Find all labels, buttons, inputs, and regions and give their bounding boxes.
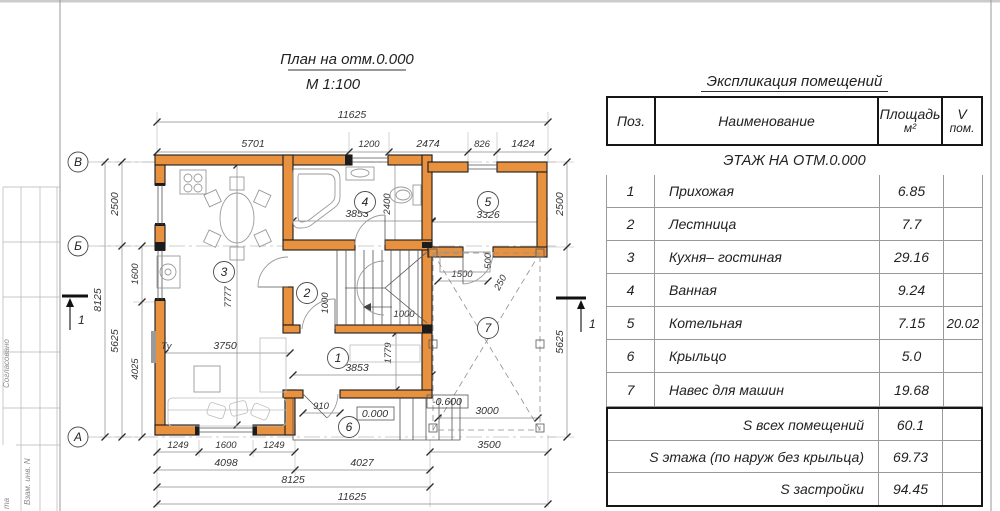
summary-row: S всех помещений 60.1 [608, 409, 981, 441]
dim-1424: 1424 [511, 138, 535, 150]
dim-left-4025: 4025 [130, 358, 141, 380]
row-pos: 5 [607, 307, 655, 339]
row-vol [944, 175, 982, 207]
summary-vol [943, 441, 981, 472]
dim-left-1600: 1600 [130, 263, 141, 285]
dim-b-1249b: 1249 [263, 440, 285, 451]
row-area: 5.0 [880, 340, 944, 372]
room-1: 1 [335, 351, 342, 365]
row-name: Кухня– гостиная [655, 241, 880, 273]
table-row: 7 Навес для машин 19.68 [607, 373, 982, 406]
summary-name: S этажа (по наруж без крыльца) [608, 441, 879, 472]
stamp-agreed-label: Согласовано [2, 339, 11, 388]
washing-machine [157, 256, 180, 288]
row-name: Крыльцо [655, 340, 880, 372]
room-6: 6 [346, 420, 353, 434]
summary-name: S застройки [608, 473, 879, 505]
dim-826: 826 [474, 139, 491, 150]
schedule-header: Поз. Наименование Площадь м² V пом. [606, 96, 983, 146]
row-pos: 4 [607, 274, 655, 306]
plan-scale: М 1:100 [306, 76, 361, 93]
elevation-zero: 0.000 [362, 408, 388, 420]
sofa [168, 398, 286, 426]
section-mark-right: 1 [556, 298, 596, 332]
bathtub [293, 169, 340, 228]
summary-name: S всех помещений [608, 409, 879, 440]
table-row: 4 Ванная 9.24 [607, 274, 982, 307]
dim-5701: 5701 [241, 138, 264, 150]
col-name: Наименование [656, 98, 879, 144]
dim-b-11625: 11625 [338, 491, 367, 503]
row-area: 7.7 [880, 208, 944, 240]
row-area: 6.85 [880, 175, 944, 207]
row-pos: 2 [607, 208, 655, 240]
elevation-marks: 0.000 -0.600 [357, 395, 468, 420]
table-row: 2 Лестница 7.7 [607, 208, 982, 241]
row-name: Прихожая [655, 175, 880, 207]
row-area: 7.15 [880, 307, 944, 339]
summary-area: 94.45 [879, 473, 943, 505]
summary-row: S этажа (по наруж без крыльца) 69.73 [608, 441, 981, 473]
axis-bubbles: В Б А [68, 152, 88, 447]
dim-stair-a: 1000 [320, 292, 331, 314]
stamp-data-label: та [2, 497, 11, 509]
summary-vol [943, 409, 981, 440]
dim-left-5625: 5625 [109, 329, 121, 353]
dim-right-5625: 5625 [554, 330, 566, 354]
dim-right-2500: 2500 [554, 192, 566, 217]
section-number-right: 1 [589, 317, 596, 331]
dim-living-h: 7777 [223, 286, 234, 308]
row-vol [944, 340, 982, 372]
kitchen-door-swing [258, 257, 288, 287]
row-vol [944, 274, 982, 306]
col-area: Площадь м² [879, 98, 943, 144]
dim-bath-h: 2400 [382, 193, 393, 216]
room-4: 4 [362, 195, 369, 209]
schedule-title: Экспликация помещений [606, 73, 983, 90]
row-name: Лестница [655, 208, 880, 240]
dim-left-8125: 8125 [92, 288, 104, 312]
row-vol [944, 208, 982, 240]
row-vol [944, 241, 982, 273]
row-pos: 6 [607, 340, 655, 372]
row-name: Ванная [655, 274, 880, 306]
room-5: 5 [485, 195, 492, 209]
section-mark-left: 1 [62, 296, 88, 330]
schedule-summary: S всех помещений 60.1 S этажа (по наруж … [606, 407, 983, 507]
axis-v-label: В [74, 155, 82, 169]
row-area: 29.16 [880, 241, 944, 273]
room-2: 2 [303, 286, 311, 300]
schedule-rows: 1 Прихожая 6.85 2 Лестница 7.7 3 Кухня– … [606, 175, 983, 407]
dim-b-8125: 8125 [281, 474, 305, 486]
dim-left-2500: 2500 [109, 192, 121, 217]
dim-b-3500: 3500 [477, 439, 501, 451]
dim-2474: 2474 [415, 138, 440, 150]
dim-car-1500: 1500 [451, 269, 473, 280]
dim-b-4098: 4098 [214, 457, 238, 469]
dim-1200: 1200 [358, 139, 380, 150]
schedule-title-text: Экспликация помещений [701, 73, 889, 92]
summary-row: S застройки 94.45 [608, 473, 981, 505]
room-3: 3 [221, 265, 228, 279]
row-pos: 1 [607, 175, 655, 207]
summary-area: 60.1 [879, 409, 943, 440]
dim-car-w: 3000 [475, 405, 499, 417]
col-pos: Поз. [608, 98, 656, 144]
stamp-vzam-label: Взам. инв. N [23, 458, 32, 505]
row-pos: 3 [607, 241, 655, 273]
col-vol: V пом. [943, 98, 981, 144]
dim-b-1249a: 1249 [167, 440, 189, 451]
dining-table [204, 177, 272, 260]
table-row: 6 Крыльцо 5.0 [607, 340, 982, 373]
row-vol [944, 373, 982, 406]
row-name: Навес для машин [655, 373, 880, 406]
table-row: 3 Кухня– гостиная 29.16 [607, 241, 982, 274]
table-row: 1 Прихожая 6.85 [607, 175, 982, 208]
dim-hall-w: 3853 [345, 362, 369, 374]
coffee-table [194, 366, 220, 392]
stove-icon [180, 170, 206, 194]
schedule-section-header: ЭТАЖ НА ОТМ.0.000 [606, 146, 983, 175]
elevation-minus: -0.600 [432, 396, 462, 408]
table-row: 5 Котельная 7.15 20.02 [607, 307, 982, 340]
summary-area: 69.73 [879, 441, 943, 472]
section-number-left: 1 [78, 313, 85, 327]
row-name: Котельная [655, 307, 880, 339]
tv-label: Tv [161, 341, 173, 352]
axis-a-label: А [73, 430, 82, 444]
room-schedule: Экспликация помещений Поз. Наименование … [606, 73, 983, 507]
row-vol: 20.02 [944, 307, 982, 339]
plan-title-block: План на отм.0.000 М 1:100 [280, 51, 414, 93]
dim-b-1600: 1600 [215, 440, 237, 451]
summary-vol [943, 473, 981, 505]
axis-b-label: Б [74, 239, 82, 253]
row-pos: 7 [607, 373, 655, 406]
cabinet [260, 338, 286, 392]
row-area: 9.24 [880, 274, 944, 306]
dim-b-4027: 4027 [350, 457, 375, 469]
dim-living-w: 3750 [213, 340, 237, 352]
bathroom-sink [346, 167, 374, 180]
row-area: 19.68 [880, 373, 944, 406]
plan-title: План на отм.0.000 [280, 51, 414, 68]
dim-car-250: 250 [492, 273, 510, 294]
tv-unit [151, 331, 156, 363]
dim-top-total: 11625 [338, 109, 367, 121]
sheet-top-edge [0, 0, 1000, 3]
